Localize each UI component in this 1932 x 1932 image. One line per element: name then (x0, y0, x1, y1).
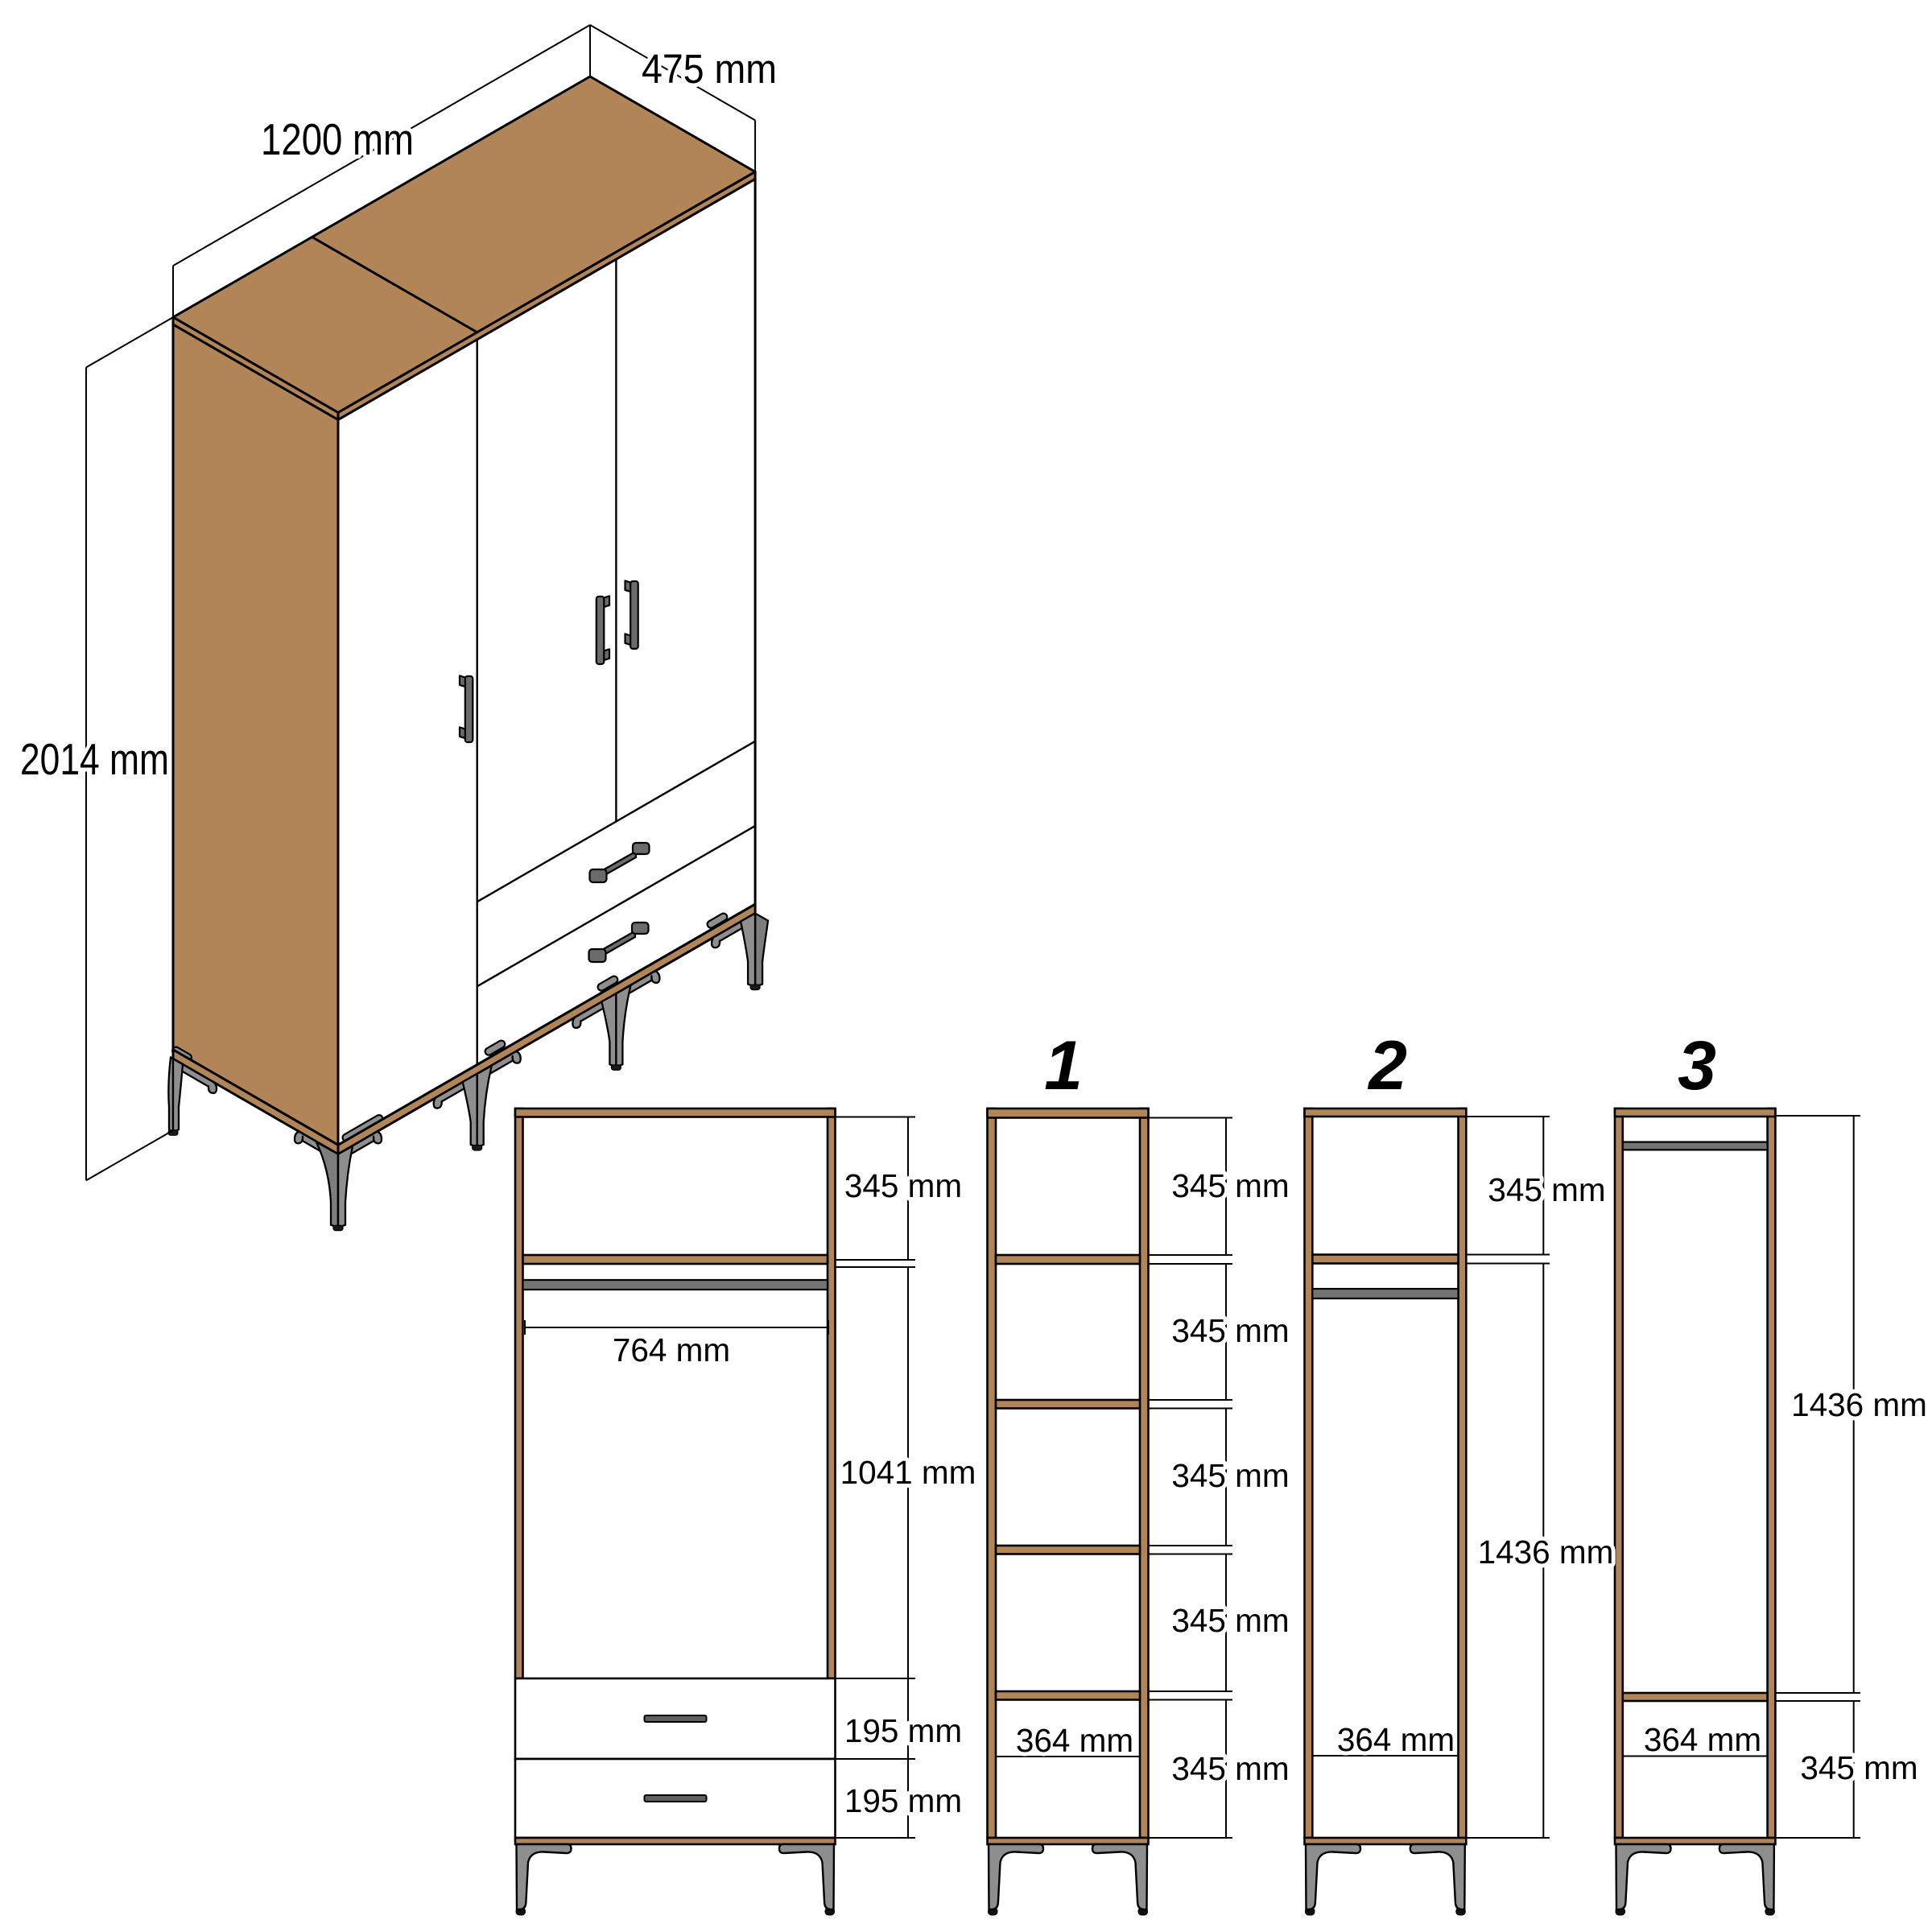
svg-text:345 mm: 345 mm (1171, 1750, 1289, 1787)
svg-text:2014 mm: 2014 mm (20, 734, 169, 784)
svg-text:1436 mm: 1436 mm (1478, 1534, 1614, 1571)
svg-text:345 mm: 345 mm (1800, 1749, 1918, 1786)
svg-text:2: 2 (1367, 1027, 1407, 1104)
svg-text:345 mm: 345 mm (1171, 1167, 1289, 1204)
svg-text:364 mm: 364 mm (1337, 1721, 1455, 1758)
svg-text:195 mm: 195 mm (844, 1782, 962, 1819)
svg-text:475 mm: 475 mm (642, 46, 777, 92)
svg-text:345 mm: 345 mm (844, 1167, 962, 1204)
svg-text:345 mm: 345 mm (1171, 1312, 1289, 1349)
svg-text:364 mm: 364 mm (1016, 1722, 1133, 1759)
svg-text:364 mm: 364 mm (1644, 1721, 1761, 1758)
svg-text:3: 3 (1678, 1027, 1716, 1104)
svg-text:1: 1 (1044, 1027, 1083, 1104)
svg-text:195 mm: 195 mm (844, 1712, 962, 1749)
svg-text:1041 mm: 1041 mm (840, 1454, 976, 1491)
svg-text:345 mm: 345 mm (1488, 1171, 1605, 1208)
svg-text:345 mm: 345 mm (1171, 1457, 1289, 1494)
svg-text:1436 mm: 1436 mm (1791, 1386, 1927, 1423)
svg-text:345 mm: 345 mm (1171, 1602, 1289, 1639)
svg-text:1200 mm: 1200 mm (261, 114, 414, 164)
svg-text:764 mm: 764 mm (613, 1331, 730, 1368)
